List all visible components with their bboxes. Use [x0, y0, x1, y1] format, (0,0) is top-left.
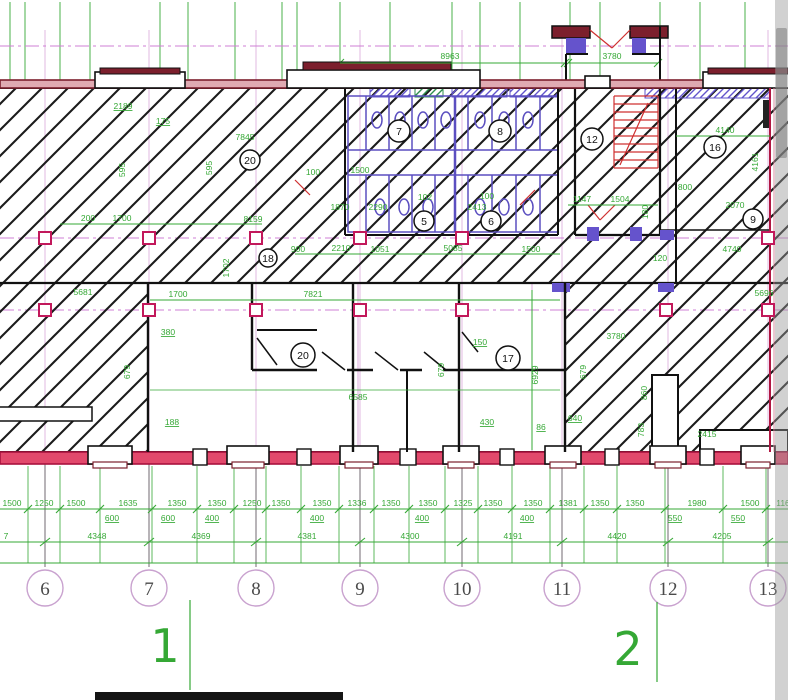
dimension-chain-row2: 7 4348 4369 4381 4300 4191 4420 4205 [4, 531, 732, 541]
room-number: 12 [586, 134, 598, 146]
grid-number: 9 [355, 579, 365, 600]
dim: 175 [156, 116, 170, 126]
chain1-value: 1350 [591, 498, 610, 508]
dim: 100 [480, 191, 494, 201]
dim: 783 [636, 423, 646, 437]
purple-wall-segment [632, 38, 646, 54]
dim: 6585 [349, 392, 368, 402]
dim: 430 [480, 417, 494, 427]
window-sill [232, 462, 264, 468]
grid-bubble-12: 12 [650, 570, 686, 606]
room-number: 7 [396, 126, 402, 138]
purple-wall-segment [566, 38, 586, 54]
room-circle-12: 12 [581, 128, 603, 150]
dim: 150 [473, 337, 487, 347]
dim: 180 [640, 205, 650, 219]
bottom-black-strip [95, 692, 343, 700]
dim: 1051 [371, 244, 390, 254]
dim: 900 [291, 244, 305, 254]
room-circle-5: 5 [414, 211, 434, 231]
room-circle-16: 16 [704, 136, 726, 158]
dim: 100 [306, 167, 320, 177]
dim: 1700 [113, 213, 132, 223]
chain1-value: 1350 [419, 498, 438, 508]
grid-number: 7 [144, 579, 154, 600]
wall-pier [700, 449, 714, 465]
dim: 800 [678, 182, 692, 192]
grid-number: 12 [659, 579, 678, 600]
chain1-value: 1350 [272, 498, 291, 508]
dimension-chain-row1: 1500 1250 1500 1635 1350 1350 1250 1350 … [3, 498, 788, 508]
dim: 2210 [332, 243, 351, 253]
chain1-value: 1350 [382, 498, 401, 508]
dim: 1870 [331, 202, 350, 212]
chain2-value: 4300 [401, 531, 420, 541]
chain1-value: 1336 [348, 498, 367, 508]
dim: 1500 [351, 165, 370, 175]
dim: 1702 [221, 258, 231, 277]
dim: 7821 [304, 289, 323, 299]
room-circle-7: 7 [388, 120, 410, 142]
dim: 2070 [726, 200, 745, 210]
zone-label-1: 1 [150, 619, 179, 673]
window-sill [550, 462, 576, 468]
grid-bubble-9: 9 [342, 570, 378, 606]
dim: 2415 [698, 429, 717, 439]
grid-bubble-10: 10 [444, 570, 480, 606]
dim: 5085 [444, 243, 463, 253]
dim: 679 [578, 365, 588, 379]
dim-8963: 8963 [441, 51, 460, 61]
pier [552, 26, 590, 38]
room-number: 9 [750, 214, 756, 226]
room-number: 18 [262, 253, 274, 265]
leader-value: 600 [105, 513, 119, 523]
wall-notch [0, 407, 92, 421]
grid-number: 8 [251, 579, 261, 600]
chain2-value: 4420 [608, 531, 627, 541]
chain1-value: 1325 [454, 498, 473, 508]
window [340, 446, 378, 464]
floor-plan-drawing: 8963 3780 2189 175 7845 595 595 200 1700… [0, 0, 788, 700]
dim: 860 [639, 386, 649, 400]
leader-value: 400 [205, 513, 219, 523]
chain2-value: 4369 [192, 531, 211, 541]
dim: 120 [653, 253, 667, 263]
chain2-value: 4205 [713, 531, 732, 541]
scrollbar[interactable] [775, 0, 788, 700]
grid-number: 11 [553, 579, 571, 600]
wall-pier [193, 449, 207, 465]
leader-value: 550 [668, 513, 682, 523]
grid-bubbles: 6 7 8 9 10 11 12 13 [27, 570, 786, 606]
room-circle-8: 8 [489, 120, 511, 142]
chain2-value: 4348 [88, 531, 107, 541]
window-sill [448, 462, 474, 468]
bottom-window-band [0, 446, 788, 468]
dim: 2290 [369, 202, 388, 212]
dim: 4740 [723, 244, 742, 254]
chain2-value: 4381 [298, 531, 317, 541]
room-circle-17: 17 [496, 346, 520, 370]
room-circle-6: 6 [481, 211, 501, 231]
leader-value: 400 [415, 513, 429, 523]
chain1-value: 1635 [119, 498, 138, 508]
grid-number: 13 [759, 579, 778, 600]
dim: 102 [418, 192, 432, 202]
grid-number: 6 [40, 579, 50, 600]
top-window-band [0, 62, 788, 88]
room-number: 20 [297, 350, 309, 362]
grid-bubble-8: 8 [238, 570, 274, 606]
chain1-value: 1381 [559, 498, 578, 508]
pier [630, 26, 668, 38]
chain2-value: 4191 [504, 531, 523, 541]
chain1-value: 1350 [168, 498, 187, 508]
room-circle-20-lower: 20 [291, 343, 315, 367]
room-circle-9: 9 [743, 209, 763, 229]
dim: 2189 [114, 101, 133, 111]
grid-bubble-7: 7 [131, 570, 167, 606]
chain1-value: 1350 [626, 498, 645, 508]
dim: 595 [117, 163, 127, 177]
dim: 1500 [522, 244, 541, 254]
room-number: 17 [502, 353, 514, 365]
window-sill [345, 462, 373, 468]
chain1-value: 1350 [208, 498, 227, 508]
window-sill [746, 462, 770, 468]
chain1-value: 1500 [67, 498, 86, 508]
chain1-value: 1500 [741, 498, 760, 508]
chain1-value: 1350 [484, 498, 503, 508]
dim: 7845 [236, 132, 255, 142]
chain1-value: 1250 [35, 498, 54, 508]
chain1-value: 1500 [3, 498, 22, 508]
window [287, 70, 480, 88]
window-sill [93, 462, 127, 468]
dim: 5681 [74, 287, 93, 297]
hatched-wall-blocks [0, 88, 788, 452]
room-number: 6 [488, 216, 494, 228]
dim: 1147 [573, 194, 592, 204]
dim: 86 [536, 422, 546, 432]
dim: 640 [568, 413, 582, 423]
chain1-value: 1350 [313, 498, 332, 508]
window [585, 76, 610, 88]
room-number: 5 [421, 216, 427, 228]
dim: 595 [204, 161, 214, 175]
dim: 188 [165, 417, 179, 427]
dim: 8159 [244, 214, 263, 224]
chain1-value: 1250 [243, 498, 262, 508]
chain2-value: 7 [4, 531, 9, 541]
wall-pier [605, 449, 619, 465]
zone-label-2: 2 [613, 622, 642, 676]
window [545, 446, 581, 464]
scrollbar-thumb[interactable] [776, 28, 787, 158]
dim: 679 [436, 363, 446, 377]
leader-value: 600 [161, 513, 175, 523]
dim: 1700 [169, 289, 188, 299]
cad-floor-plan-viewer: 8963 3780 2189 175 7845 595 595 200 1700… [0, 0, 788, 700]
wall-pier [500, 449, 514, 465]
window-sill [100, 68, 180, 74]
dim: 2413 [468, 202, 487, 212]
grid-bubble-6: 6 [27, 570, 63, 606]
zone-labels: 1 2 [150, 600, 657, 690]
dim: 3780 [607, 331, 626, 341]
window [443, 446, 479, 464]
leader-value: 550 [731, 513, 745, 523]
room-number: 8 [497, 126, 503, 138]
window [88, 446, 132, 464]
wall-notch [652, 375, 678, 452]
dim: 679 [122, 365, 132, 379]
dim-3780-top: 3780 [603, 51, 622, 61]
dim: 4161 [750, 152, 760, 171]
dim: 380 [161, 327, 175, 337]
dimension-chain-leaders: 600 600 400 400 400 400 550 550 [105, 513, 745, 523]
dim: 1504 [611, 194, 630, 204]
wall-pier [297, 449, 311, 465]
room-number: 20 [244, 155, 256, 167]
grid-bubble-11: 11 [544, 570, 580, 606]
room-circle-18: 18 [259, 249, 277, 267]
chain1-value: 1980 [688, 498, 707, 508]
dim: 6929 [530, 365, 540, 384]
chain1-value: 1350 [524, 498, 543, 508]
leader-value: 400 [520, 513, 534, 523]
window [227, 446, 269, 464]
room-number: 16 [709, 142, 721, 154]
room-circle-20-upper: 20 [240, 150, 260, 170]
dim: 4140 [716, 125, 735, 135]
leader-value: 400 [310, 513, 324, 523]
window-sill [655, 462, 681, 468]
dim: 5696 [755, 288, 774, 298]
grid-number: 10 [453, 579, 472, 600]
dim: 200 [81, 213, 95, 223]
window [650, 446, 686, 464]
